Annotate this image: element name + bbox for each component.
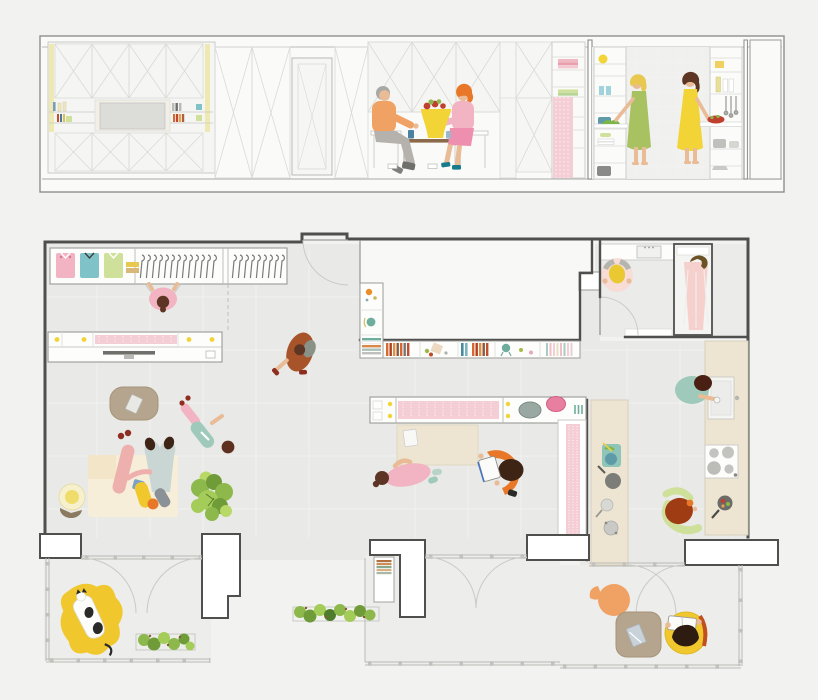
lemon <box>599 55 608 64</box>
salad-bowl <box>708 116 725 124</box>
vase <box>63 102 66 111</box>
foot <box>125 430 131 436</box>
cabinet-light <box>55 337 60 342</box>
pan-plan <box>601 499 613 511</box>
kitchen-wall-divider <box>588 40 592 179</box>
cup <box>714 397 720 403</box>
fold-console <box>370 397 586 424</box>
shoe <box>185 395 190 400</box>
cup <box>66 116 72 122</box>
pier-left <box>40 534 81 558</box>
pink-towels <box>558 59 578 68</box>
x-cabinet <box>516 42 552 172</box>
child-head <box>148 499 159 510</box>
stove-plan <box>705 445 738 478</box>
pier-l-shaped <box>202 534 240 618</box>
drawing-canvas <box>0 0 818 700</box>
shoe <box>179 400 184 405</box>
void-shelf-column <box>360 283 383 358</box>
decor-teal <box>367 318 376 327</box>
decor-orange <box>366 289 372 295</box>
coffee-table <box>110 387 158 420</box>
cup <box>408 130 414 139</box>
apartment-drawing <box>0 0 818 700</box>
hinge-dot <box>506 402 510 406</box>
cabinet-light <box>187 337 192 342</box>
hinge-dot <box>388 402 392 406</box>
rug-patch <box>88 455 116 479</box>
hall-closet <box>579 272 600 290</box>
shoe <box>299 370 307 375</box>
bowl <box>729 141 739 148</box>
outdoor-table <box>616 612 661 657</box>
stool-gray <box>519 402 541 418</box>
media-console <box>48 332 222 362</box>
head <box>694 375 712 391</box>
section-view <box>40 36 784 192</box>
skirt <box>448 128 474 146</box>
pink-curtain <box>553 97 573 178</box>
shoe <box>452 165 461 170</box>
pot-dark <box>597 166 611 176</box>
stool-pink <box>547 397 566 412</box>
console-device <box>206 351 215 358</box>
folded-stack <box>126 262 139 267</box>
glass <box>599 86 604 95</box>
cabinet-edge-strip <box>205 44 210 132</box>
outer-wall-section <box>744 40 747 179</box>
head <box>222 441 235 454</box>
kitchen-shelf-right <box>710 47 742 179</box>
adjacent-shaft <box>750 40 781 179</box>
hanging-utensils <box>724 96 738 117</box>
book <box>53 102 56 111</box>
bowl <box>600 133 611 137</box>
storage-column <box>500 42 585 178</box>
hinge-dot <box>506 414 510 418</box>
person-hanging-chair <box>665 612 707 654</box>
shower-shelf <box>677 247 709 255</box>
interior-door <box>292 58 332 175</box>
folded-table-panel <box>398 401 499 419</box>
pier-right-living <box>527 535 589 560</box>
hinge-dot <box>388 414 392 418</box>
folded-stack <box>126 268 139 273</box>
doormat-stripes <box>377 560 392 574</box>
cabinet-edge-strip <box>49 44 54 132</box>
pier-far-right <box>685 540 778 565</box>
pot-plan <box>605 473 621 489</box>
cabinet-light <box>82 337 87 342</box>
stored-partition <box>558 420 586 540</box>
person-vanity <box>601 258 633 292</box>
cup <box>196 104 202 110</box>
shower-stall <box>674 244 712 335</box>
books-orange <box>386 343 409 356</box>
notebook <box>403 429 418 447</box>
tv-screen <box>100 103 165 129</box>
butter-box <box>715 61 724 68</box>
bowl <box>196 115 202 121</box>
bottle <box>723 79 728 92</box>
tv-stand <box>124 355 134 359</box>
void-shelf-row <box>383 341 580 358</box>
bottle <box>716 77 721 92</box>
bath-threshold <box>625 329 672 336</box>
media-wall-unit <box>48 42 215 173</box>
pan <box>712 166 728 170</box>
tv-plan <box>103 351 155 355</box>
plates <box>598 142 614 145</box>
cabinet-light <box>210 337 215 342</box>
plates <box>598 139 614 142</box>
bathroom <box>600 244 748 337</box>
bottle <box>729 79 734 92</box>
cup <box>446 131 451 139</box>
glass <box>606 86 611 95</box>
pot <box>713 139 726 148</box>
vase <box>58 103 61 111</box>
foot <box>118 433 124 439</box>
kitchen-section <box>592 40 747 179</box>
adjacent-void <box>360 238 580 340</box>
floor-plan <box>40 234 778 668</box>
head <box>499 459 524 481</box>
